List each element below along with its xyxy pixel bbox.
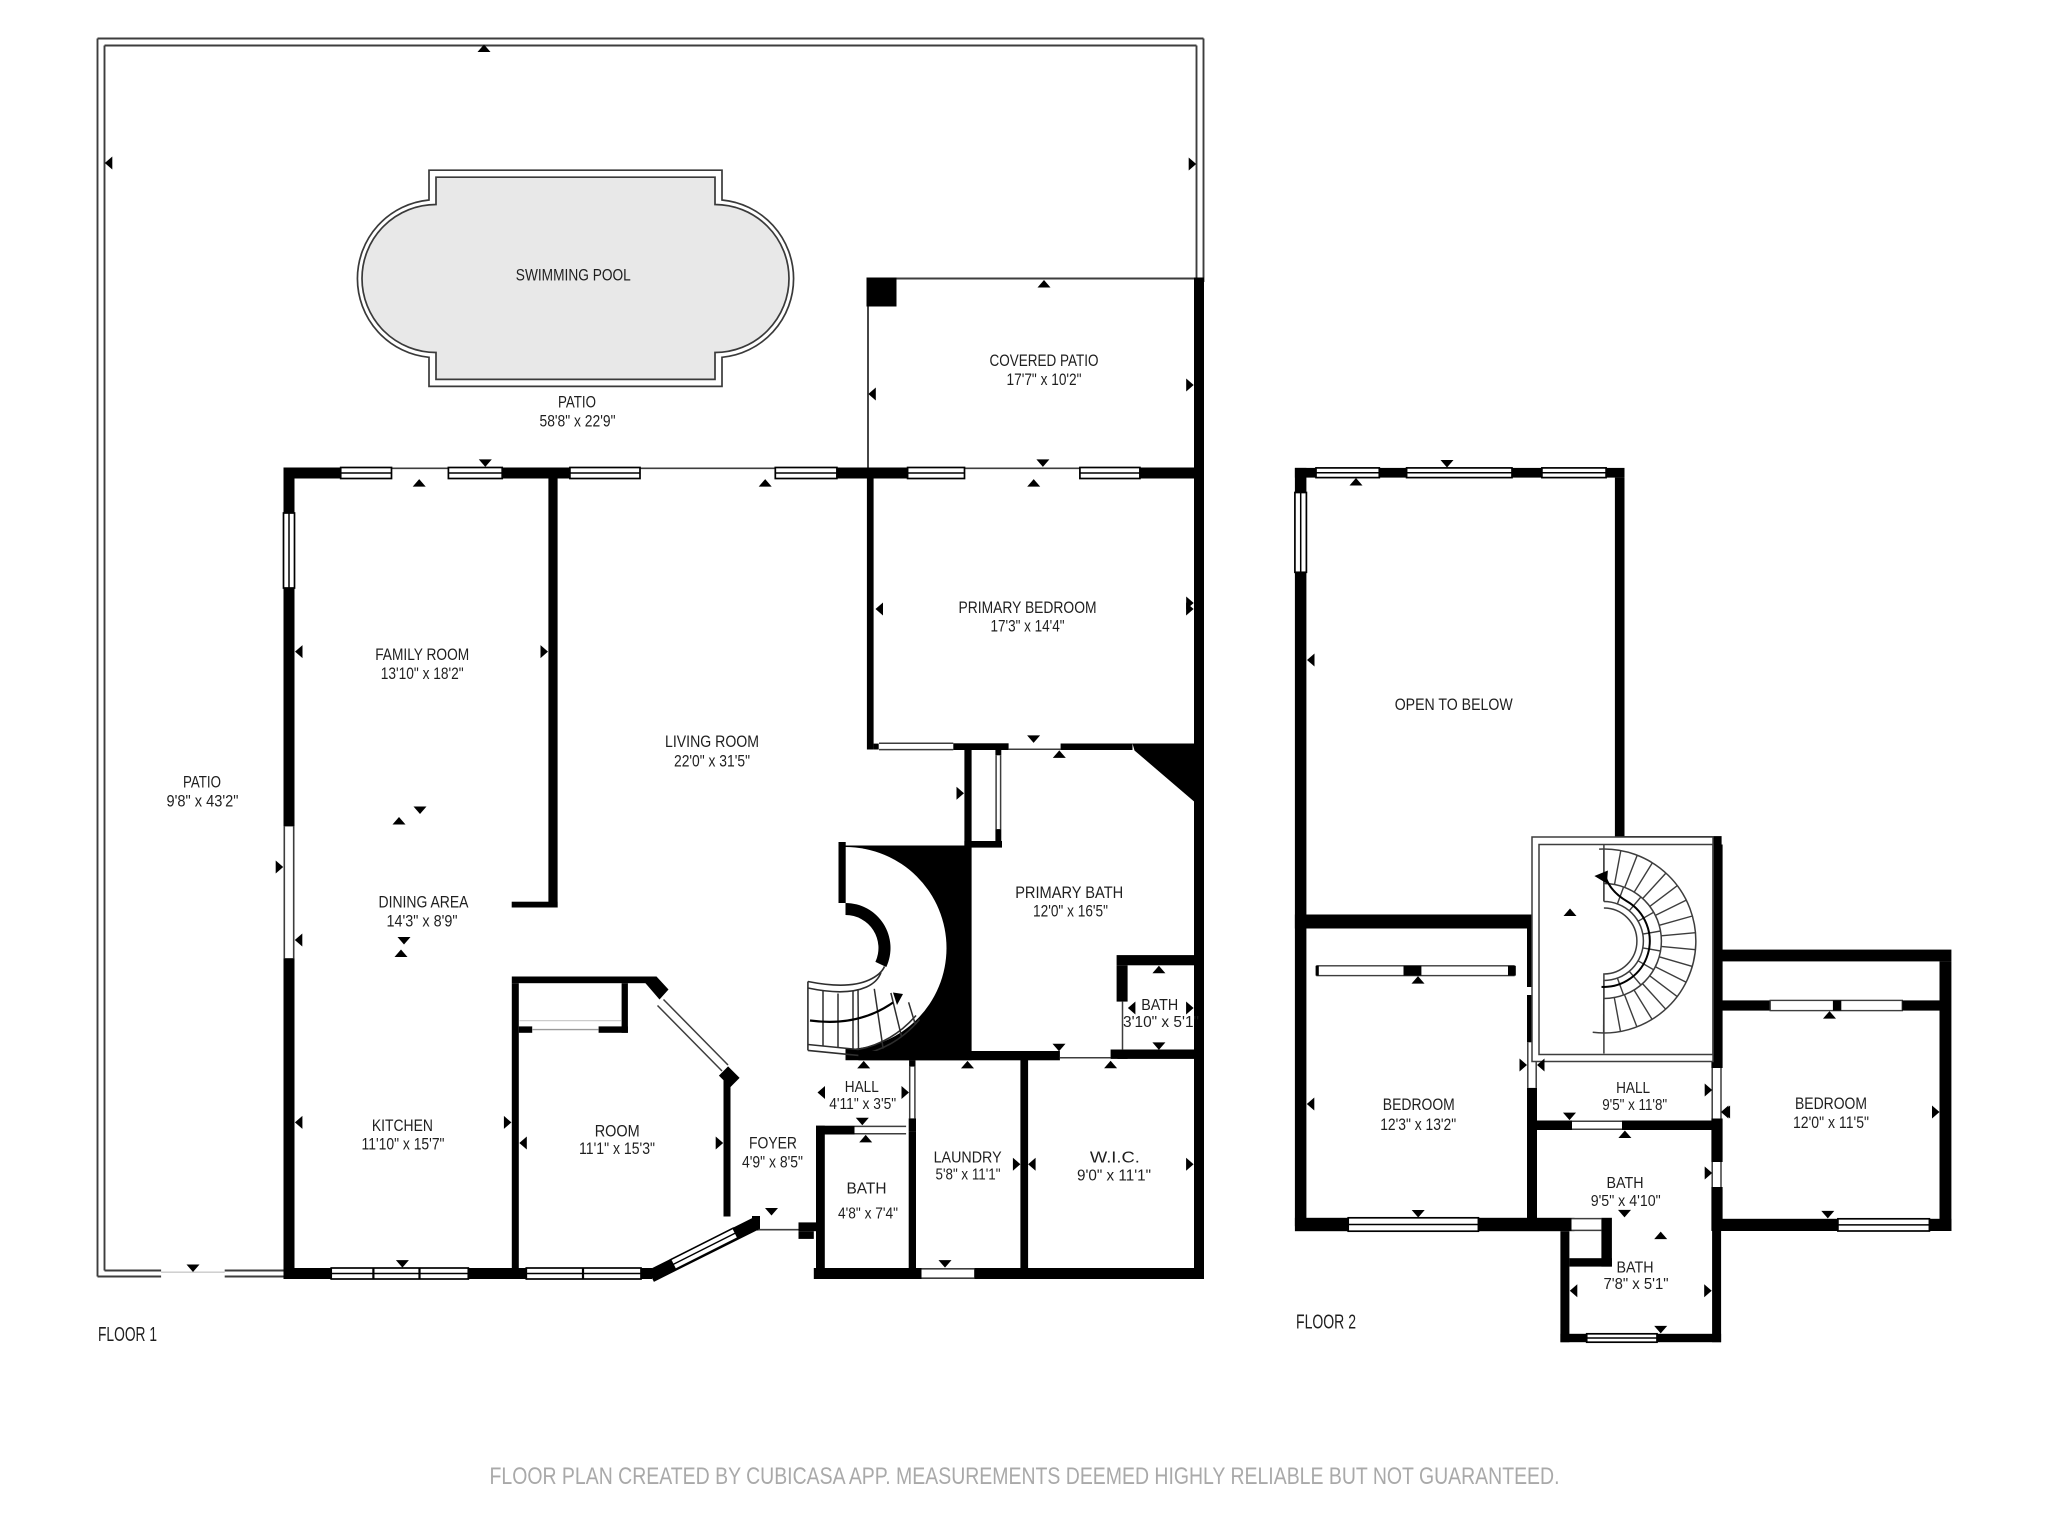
- svg-text:12'0" x 11'5": 12'0" x 11'5": [1793, 1114, 1869, 1132]
- svg-text:11'10" x 15'7": 11'10" x 15'7": [362, 1136, 445, 1154]
- svg-text:14'3" x 8'9": 14'3" x 8'9": [387, 913, 458, 931]
- svg-text:PATIO: PATIO: [558, 394, 596, 412]
- svg-text:17'3" x 14'4": 17'3" x 14'4": [991, 618, 1065, 636]
- svg-text:OPEN TO BELOW: OPEN TO BELOW: [1395, 696, 1513, 714]
- svg-text:9'5" x 4'10": 9'5" x 4'10": [1591, 1193, 1661, 1210]
- svg-text:7'8" x 5'1": 7'8" x 5'1": [1604, 1276, 1669, 1293]
- svg-text:17'7" x 10'2": 17'7" x 10'2": [1007, 371, 1082, 389]
- svg-text:LAUNDRY: LAUNDRY: [934, 1150, 1002, 1167]
- svg-text:LIVING ROOM: LIVING ROOM: [665, 733, 759, 751]
- svg-text:BEDROOM: BEDROOM: [1795, 1095, 1867, 1113]
- svg-text:FOYER: FOYER: [749, 1134, 797, 1152]
- svg-text:PRIMARY BATH: PRIMARY BATH: [1015, 884, 1123, 902]
- svg-text:FLOOR 1: FLOOR 1: [98, 1324, 157, 1346]
- svg-text:BATH: BATH: [1607, 1175, 1644, 1192]
- svg-text:9'8" x 43'2": 9'8" x 43'2": [167, 793, 239, 811]
- svg-text:PATIO: PATIO: [183, 774, 221, 792]
- svg-text:12'3" x 13'2": 12'3" x 13'2": [1380, 1116, 1456, 1134]
- svg-text:COVERED PATIO: COVERED PATIO: [990, 352, 1099, 370]
- svg-text:KITCHEN: KITCHEN: [372, 1117, 433, 1135]
- svg-text:13'10" x 18'2": 13'10" x 18'2": [381, 665, 464, 683]
- svg-text:HALL: HALL: [1616, 1080, 1650, 1097]
- svg-text:22'0" x 31'5": 22'0" x 31'5": [674, 753, 750, 771]
- svg-text:PRIMARY BEDROOM: PRIMARY BEDROOM: [959, 599, 1097, 617]
- svg-text:4'8" x 7'4": 4'8" x 7'4": [838, 1206, 898, 1223]
- svg-text:9'0" x 11'1": 9'0" x 11'1": [1077, 1168, 1151, 1185]
- svg-text:BEDROOM: BEDROOM: [1383, 1096, 1455, 1114]
- svg-text:FAMILY ROOM: FAMILY ROOM: [375, 646, 469, 664]
- svg-text:HALL: HALL: [845, 1079, 879, 1096]
- svg-text:9'5" x 11'8": 9'5" x 11'8": [1602, 1097, 1667, 1114]
- svg-text:BATH: BATH: [1141, 997, 1178, 1014]
- svg-text:DINING AREA: DINING AREA: [379, 894, 469, 912]
- svg-text:5'8" x 11'1": 5'8" x 11'1": [936, 1167, 1001, 1184]
- svg-text:BATH: BATH: [847, 1181, 887, 1198]
- svg-text:58'8" x 22'9": 58'8" x 22'9": [540, 413, 616, 431]
- svg-text:11'1" x 15'3": 11'1" x 15'3": [579, 1140, 655, 1158]
- svg-text:ROOM: ROOM: [595, 1123, 640, 1141]
- svg-text:4'9" x 8'5": 4'9" x 8'5": [742, 1153, 803, 1171]
- svg-text:SWIMMING POOL: SWIMMING POOL: [516, 267, 631, 285]
- svg-text:W.I.C.: W.I.C.: [1090, 1150, 1140, 1167]
- svg-text:FLOOR PLAN CREATED BY CUBICASA: FLOOR PLAN CREATED BY CUBICASA APP. MEAS…: [490, 1463, 1560, 1490]
- svg-text:BATH: BATH: [1617, 1260, 1654, 1277]
- svg-text:12'0" x 16'5": 12'0" x 16'5": [1033, 903, 1108, 921]
- svg-text:3'10" x 5'1": 3'10" x 5'1": [1123, 1014, 1199, 1031]
- svg-text:4'11" x 3'5": 4'11" x 3'5": [829, 1096, 896, 1113]
- svg-text:FLOOR 2: FLOOR 2: [1296, 1312, 1356, 1334]
